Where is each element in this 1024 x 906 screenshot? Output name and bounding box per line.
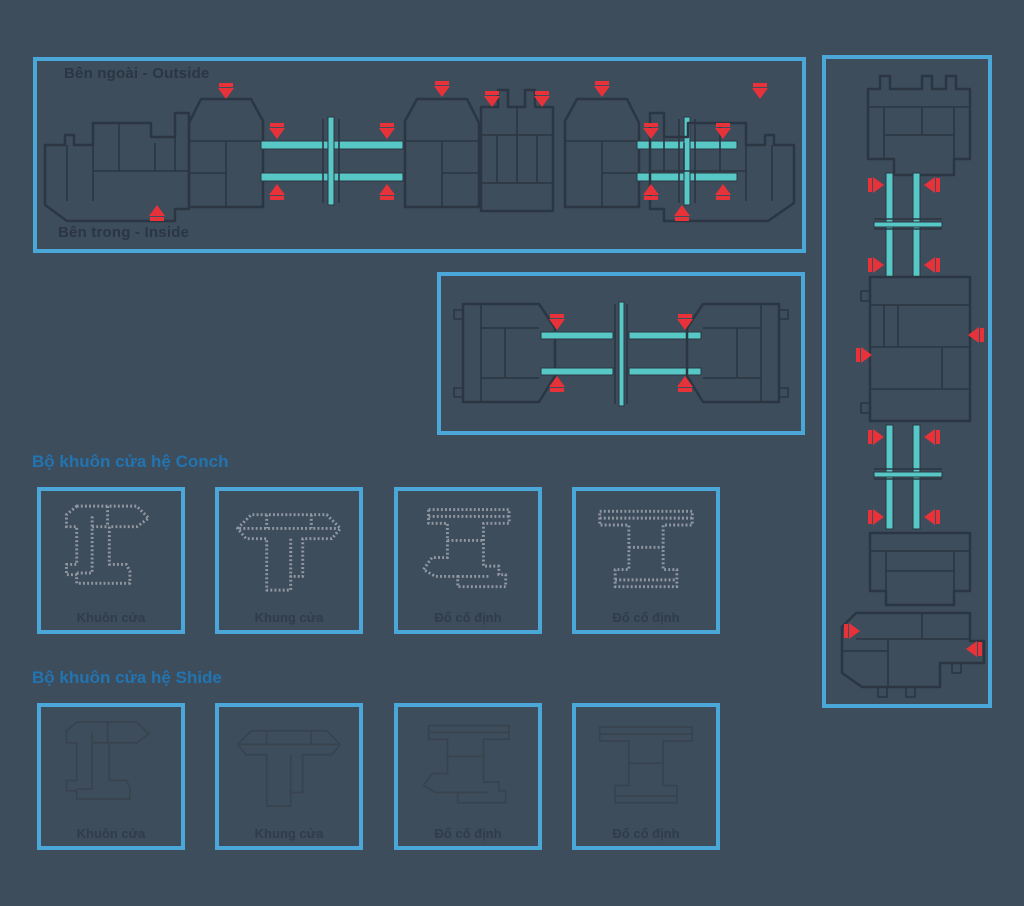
profile-card-label: Đố cố định xyxy=(576,610,716,625)
fixed-mullion-profile-drawing xyxy=(586,712,706,818)
meeting-cross-section-diagram xyxy=(441,276,801,431)
profile-card-label: Đố cố định xyxy=(398,826,538,841)
profile-card: Khung cửa xyxy=(215,703,363,850)
profile-card-label: Khuôn cửa xyxy=(41,610,181,625)
head-frame-profile xyxy=(868,76,970,175)
meeting-section-panel xyxy=(437,272,805,435)
glazing-unit xyxy=(541,302,701,406)
section-heading-shide: Bộ khuôn cửa hệ Shide xyxy=(32,668,222,688)
fixed-mullion-profile-drawing xyxy=(408,712,528,818)
profile-card: Đố cố định xyxy=(572,487,720,634)
horizontal-cross-section-diagram xyxy=(37,61,802,249)
right-sash-profile xyxy=(687,304,788,402)
outside-inside-section-panel: Bên ngoài - Outside Bên trong - Inside xyxy=(33,57,806,253)
profile-card-label: Khuôn cửa xyxy=(41,826,181,841)
vertical-section-panel xyxy=(822,55,992,708)
sash-profile xyxy=(405,99,479,207)
profile-card-label: Khung cửa xyxy=(219,826,359,841)
center-frame-profile xyxy=(481,90,553,211)
profile-card-label: Đố cố định xyxy=(398,610,538,625)
profile-card: Khuôn cửa xyxy=(37,487,185,634)
profile-card: Đố cố định xyxy=(394,487,542,634)
vertical-cross-section-diagram xyxy=(826,59,988,704)
fixed-mullion-profile-drawing xyxy=(408,496,528,602)
profile-card: Đố cố định xyxy=(394,703,542,850)
sill-profile xyxy=(842,613,984,697)
frame-profile-drawing xyxy=(51,712,171,818)
left-frame-profile xyxy=(45,113,189,221)
sash-profile-drawing xyxy=(229,712,349,818)
gasket-markers xyxy=(149,81,768,221)
meeting-stile-profile xyxy=(861,277,970,421)
profile-card-label: Khung cửa xyxy=(219,610,359,625)
frame-profile-drawing xyxy=(51,496,171,602)
profile-card: Khung cửa xyxy=(215,487,363,634)
bottom-sash-profile xyxy=(870,533,970,605)
left-sash-profile xyxy=(454,304,555,402)
fixed-mullion-profile-drawing xyxy=(586,496,706,602)
profile-card: Đố cố định xyxy=(572,703,720,850)
sash-profile xyxy=(189,99,263,207)
sash-profile xyxy=(565,99,639,207)
sash-profile-drawing xyxy=(229,496,349,602)
profile-card: Khuôn cửa xyxy=(37,703,185,850)
section-heading-conch: Bộ khuôn cửa hệ Conch xyxy=(32,452,229,472)
profile-card-label: Đố cố định xyxy=(576,826,716,841)
